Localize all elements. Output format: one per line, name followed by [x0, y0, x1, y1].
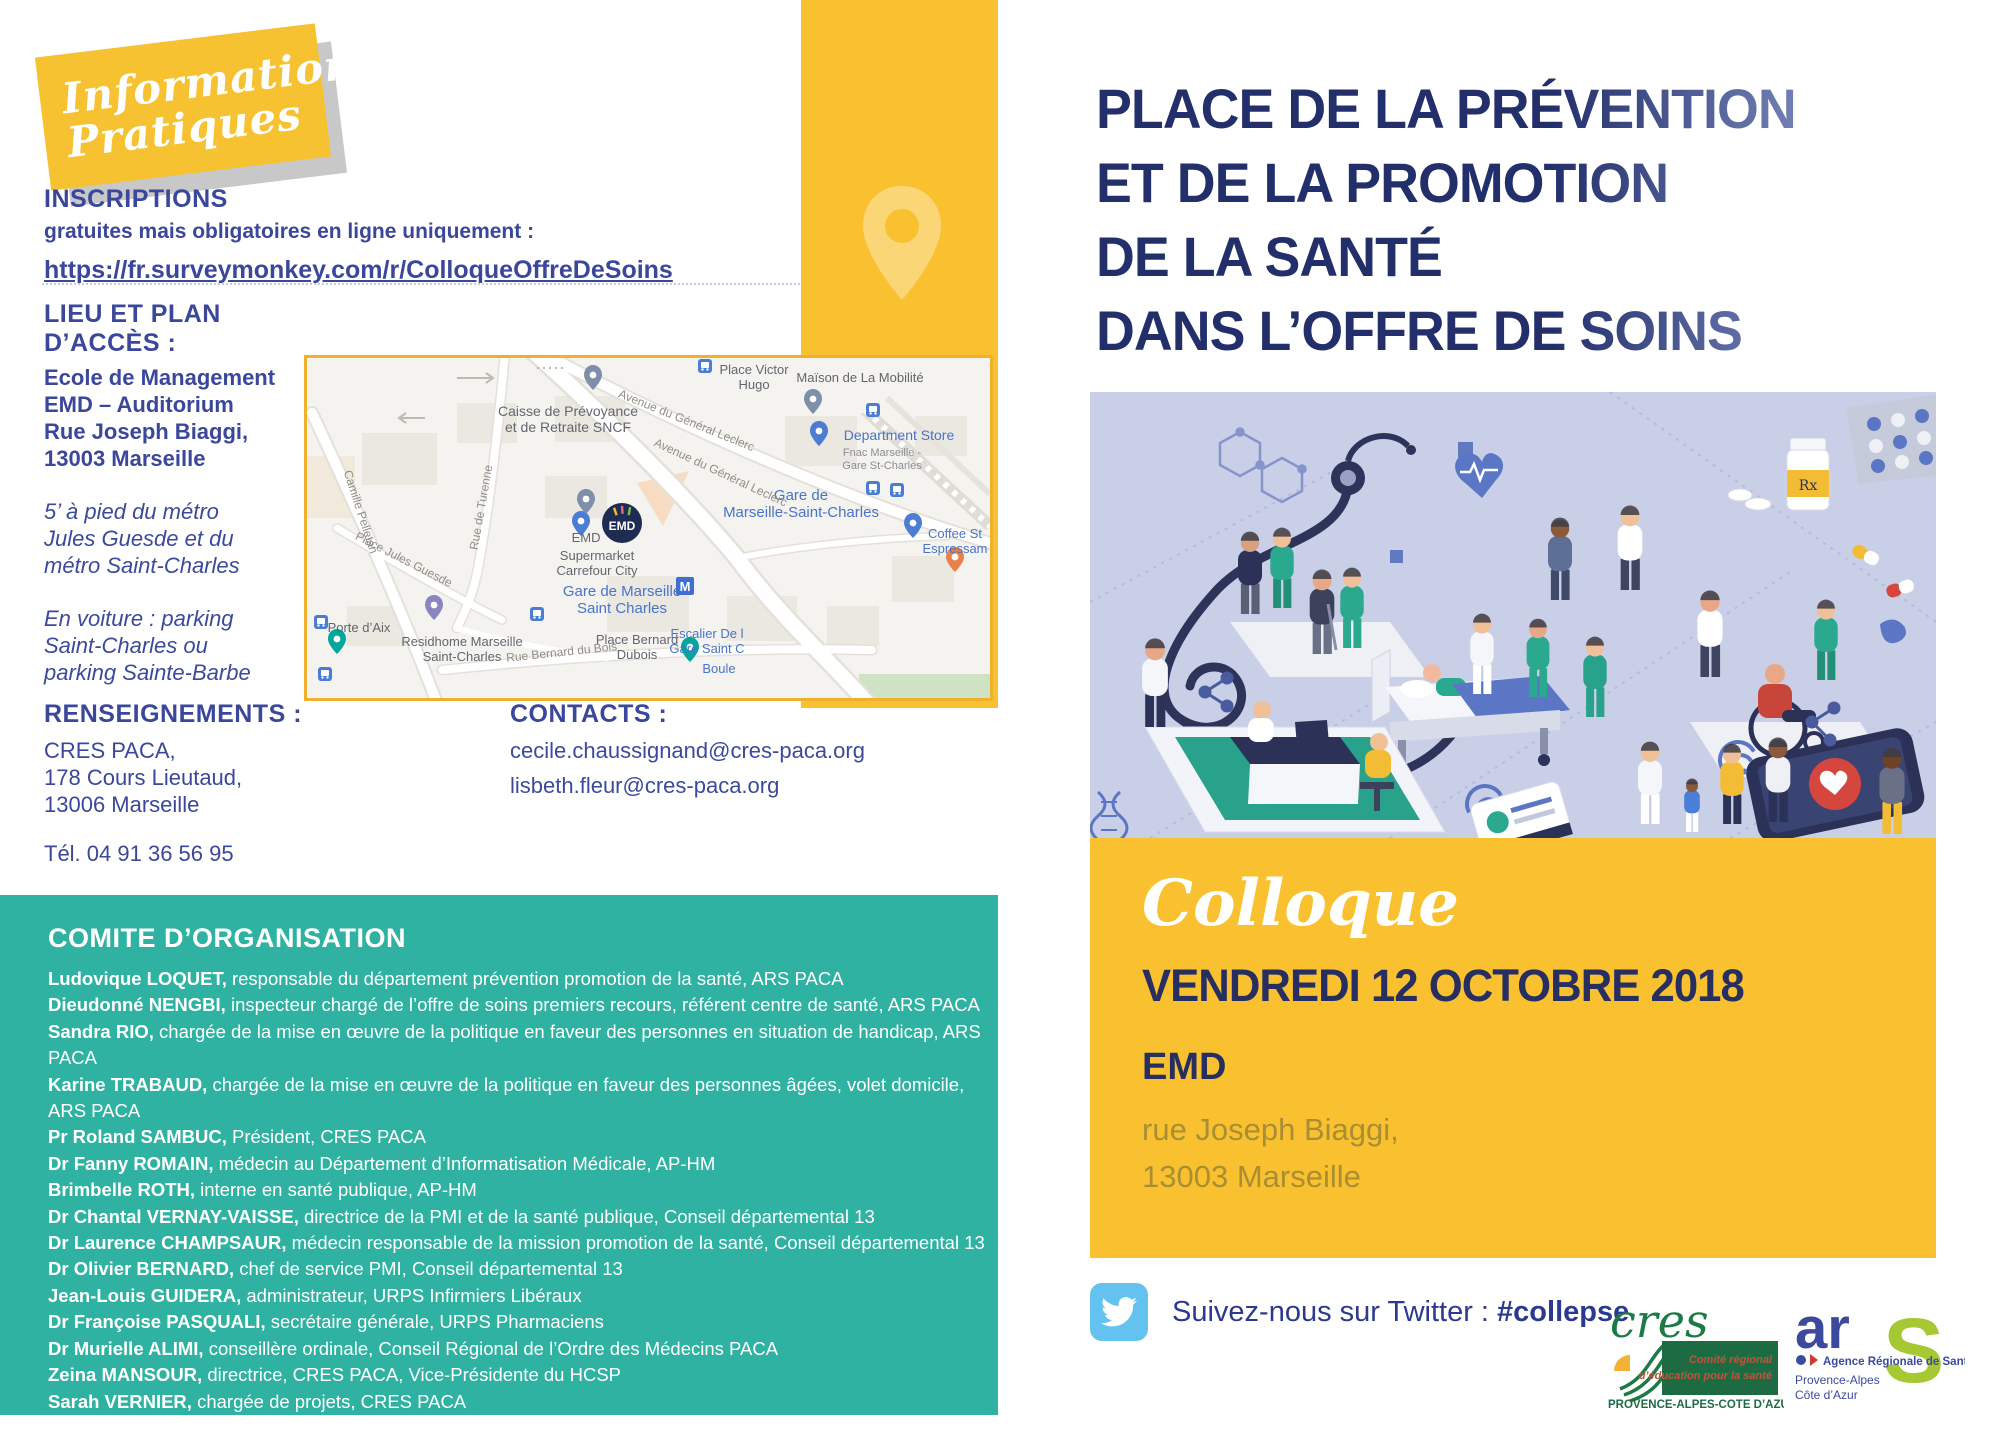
- contact-emails: cecile.chaussignand@cres-paca.orglisbeth…: [510, 738, 950, 799]
- map-pin-icon: [859, 182, 945, 312]
- cres-logo: cres Comité régional d’éducation pour la…: [1606, 1293, 1784, 1416]
- list-item: PLACE DE LA PRÉVENTION: [1096, 72, 1922, 146]
- comite-member: Sandra RIO, chargée de la mise en œuvre …: [48, 1019, 998, 1072]
- comite-block: COMITE D’ORGANISATION Ludovique LOQUET, …: [0, 895, 998, 1415]
- svg-text:et de Retraite SNCF: et de Retraite SNCF: [505, 419, 631, 435]
- transit-map-marker: [314, 615, 328, 629]
- list-item: Rue Joseph Biaggi,: [44, 418, 304, 445]
- svg-text:Gare Saint C: Gare Saint C: [669, 641, 744, 656]
- renseignements-section: RENSEIGNEMENTS : CRES PACA,178 Cours Lie…: [44, 700, 374, 918]
- comite-member: Brimbelle ROTH, interne en santé publiqu…: [48, 1177, 998, 1203]
- svg-text:Caisse de Prévoyance: Caisse de Prévoyance: [498, 403, 638, 419]
- twitter-icon: [1090, 1283, 1148, 1341]
- svg-text:EMD: EMD: [609, 519, 636, 533]
- svg-text:Saint Charles: Saint Charles: [577, 600, 667, 617]
- healthcare-illustration: Rx: [1090, 392, 1936, 838]
- map-label: Gare de MarseilleSaint Charles: [563, 583, 681, 617]
- event-address: rue Joseph Biaggi, 13003 Marseille: [1142, 1106, 1399, 1200]
- comite-member: Cécile CHAUSSIGNAND, chargée de projets,…: [48, 1415, 998, 1441]
- list-item: cecile.chaussignand@cres-paca.org: [510, 738, 950, 764]
- transit-map-marker: [890, 483, 904, 497]
- map-label: Escalier De lGare Saint C: [669, 626, 744, 656]
- renseignements-address: CRES PACA,178 Cours Lieutaud,13006 Marse…: [44, 737, 374, 818]
- svg-text:Maïson de La Mobilité: Maïson de La Mobilité: [796, 370, 923, 385]
- transit-map-marker: [318, 667, 332, 681]
- svg-text:Marseille-Saint-Charles: Marseille-Saint-Charles: [723, 504, 879, 521]
- comite-member: Dr Françoise PASQUALI, secrétaire généra…: [48, 1309, 998, 1335]
- svg-text:Rx: Rx: [1799, 478, 1818, 494]
- comite-title: COMITE D’ORGANISATION: [48, 923, 998, 954]
- list-item: 13006 Marseille: [44, 791, 374, 818]
- ars-region1: Provence-Alpes: [1795, 1373, 1880, 1387]
- comite-member: Dr Chantal VERNAY-VAISSE, directrice de …: [48, 1204, 998, 1230]
- comite-member: Zeina MANSOUR, directrice, CRES PACA, Vi…: [48, 1362, 998, 1388]
- twitter-row: Suivez-nous sur Twitter : #collepse: [1090, 1283, 1629, 1341]
- svg-text:Coffee St: Coffee St: [928, 526, 982, 541]
- contacts-section: CONTACTS : cecile.chaussignand@cres-paca…: [510, 700, 950, 799]
- event-block: Colloque VENDREDI 12 OCTOBRE 2018 EMD ru…: [1090, 838, 1936, 1258]
- svg-text:Boule: Boule: [702, 661, 735, 676]
- ars-region2: Côte d’Azur: [1795, 1388, 1858, 1402]
- map-label: EMD: [572, 530, 601, 545]
- list-item: CRES PACA,: [44, 737, 374, 764]
- map-green-area: [859, 674, 990, 698]
- list-item: Ecole de Management EMD – Auditorium: [44, 364, 304, 418]
- list-item: lisbeth.fleur@cres-paca.org: [510, 773, 950, 799]
- twitter-text: Suivez-nous sur Twitter : #collepse: [1172, 1296, 1629, 1329]
- svg-text:Fnac Marseille -: Fnac Marseille -: [843, 447, 922, 459]
- svg-text:Residhome Marseille: Residhome Marseille: [401, 634, 522, 649]
- comite-members: Ludovique LOQUET, responsable du départe…: [48, 966, 998, 1441]
- monitor-icon: [1295, 720, 1329, 746]
- cres-region: PROVENCE-ALPES-COTE D’AZUR: [1608, 1399, 1784, 1411]
- metro-access-note: 5’ à pied du métro Jules Guesde et du mé…: [44, 498, 262, 579]
- renseignements-title: RENSEIGNEMENTS :: [44, 700, 374, 729]
- inscriptions-title: INSCRIPTIONS: [44, 185, 764, 214]
- transit-map-marker: [530, 607, 544, 621]
- doctor-head: [1253, 701, 1271, 719]
- svg-text:Supermarket: Supermarket: [560, 548, 635, 563]
- cres-sub2: d’éducation pour la santé: [1639, 1370, 1772, 1382]
- square-icon: [1390, 550, 1403, 563]
- svg-text:Hugo: Hugo: [738, 377, 769, 392]
- svg-text:Espressam: Espressam: [922, 541, 987, 556]
- ars-line: Agence Régionale de Santé: [1823, 1356, 1965, 1368]
- svg-text:M: M: [680, 579, 691, 594]
- list-item: 13003 Marseille: [44, 445, 304, 472]
- comite-member: Karine TRABAUD, chargée de la mise en œu…: [48, 1072, 998, 1125]
- contacts-title: CONTACTS :: [510, 700, 950, 729]
- comite-member: Dieudonné NENGBI, inspecteur chargé de l…: [48, 992, 998, 1018]
- patient-head: [1423, 664, 1441, 682]
- comite-member: Dr Fanny ROMAIN, médecin au Département …: [48, 1151, 998, 1177]
- comite-member: Dr Olivier BERNARD, chef de service PMI,…: [48, 1256, 998, 1282]
- svg-text:Carrefour City: Carrefour City: [557, 563, 638, 578]
- comite-member: Pr Roland SAMBUC, Président, CRES PACA: [48, 1124, 998, 1150]
- svg-text:Place Victor: Place Victor: [719, 362, 789, 377]
- comite-member: Dr Murielle ALIMI, conseillère ordinale,…: [48, 1336, 998, 1362]
- emd-map-marker: EMD: [602, 503, 642, 543]
- svg-text:Gare St-Charles: Gare St-Charles: [842, 460, 922, 472]
- lieu-title: LIEU ET PLAN D’ACCÈS :: [44, 300, 304, 358]
- map-label: SupermarketCarrefour City: [557, 548, 638, 578]
- map-label: Department Store: [844, 427, 955, 443]
- svg-text:Dubois: Dubois: [617, 647, 658, 662]
- registration-link[interactable]: https://fr.surveymonkey.com/r/ColloqueOf…: [44, 256, 673, 285]
- comite-member: Jean-Louis GUIDERA, administrateur, URPS…: [48, 1283, 998, 1309]
- inscriptions-subtitle: gratuites mais obligatoires en ligne uni…: [44, 220, 764, 244]
- patient-head: [1370, 733, 1388, 751]
- lieu-address: Ecole de Management EMD – AuditoriumRue …: [44, 364, 304, 472]
- cres-sub1: Comité régional: [1689, 1354, 1773, 1366]
- cres-logo-text: cres: [1610, 1294, 1709, 1348]
- ars-ar: ar: [1795, 1298, 1850, 1361]
- parking-note: En voiture : parking Saint-Charles ou pa…: [44, 605, 262, 686]
- list-item: ET DE LA PROMOTION: [1096, 146, 1922, 220]
- access-map: MEMD Place VictorHugoMaïson de La Mobili…: [304, 355, 993, 701]
- transit-map-marker: [866, 403, 880, 417]
- map-label: Porte d’Aix: [328, 620, 391, 635]
- svg-text:Saint-Charles: Saint-Charles: [423, 649, 502, 664]
- phone-number: Tél. 04 91 36 56 95: [44, 840, 374, 867]
- dotted-separator: [42, 283, 800, 285]
- map-label: Coffee StEspressam: [922, 526, 987, 556]
- event-date: VENDREDI 12 OCTOBRE 2018: [1142, 960, 1744, 1012]
- svg-text:Porte d’Aix: Porte d’Aix: [328, 620, 391, 635]
- comite-member: Dr Laurence CHAMPSAUR, médecin responsab…: [48, 1230, 998, 1256]
- map-label: Maïson de La Mobilité: [796, 370, 923, 385]
- inscriptions-section: INSCRIPTIONS gratuites mais obligatoires…: [44, 185, 764, 285]
- map-label: Boule: [702, 661, 735, 676]
- map-label: Caisse de Prévoyanceet de Retraite SNCF: [498, 403, 638, 435]
- list-item: 178 Cours Lieutaud,: [44, 764, 374, 791]
- transit-map-marker: [698, 359, 712, 373]
- comite-member: Sarah VERNIER, chargée de projets, CRES …: [48, 1389, 998, 1415]
- transit-map-marker: [866, 481, 880, 495]
- ars-s: S: [1883, 1300, 1944, 1402]
- blister-pack-icon: [1846, 394, 1936, 484]
- svg-text:Escalier De l: Escalier De l: [671, 626, 744, 641]
- event-place: EMD: [1142, 1046, 1226, 1089]
- map-label: Fnac Marseille -Gare St-Charles: [842, 447, 922, 472]
- map-image: MEMD Place VictorHugoMaïson de La Mobili…: [307, 358, 990, 698]
- event-type: Colloque: [1142, 866, 1459, 941]
- svg-text:Department Store: Department Store: [844, 427, 955, 443]
- comite-member: Ludovique LOQUET, responsable du départe…: [48, 966, 998, 992]
- page-title: PLACE DE LA PRÉVENTIONET DE LA PROMOTION…: [1096, 72, 1956, 368]
- ars-logo: ar S Agence Régionale de Santé Provence-…: [1795, 1298, 1965, 1413]
- list-item: DANS L’OFFRE DE SOINS: [1096, 294, 1922, 368]
- list-item: DE LA SANTÉ: [1096, 220, 1922, 294]
- svg-text:EMD: EMD: [572, 530, 601, 545]
- svg-text:Gare de Marseille: Gare de Marseille: [563, 583, 681, 600]
- lieu-section: LIEU ET PLAN D’ACCÈS : Ecole de Manageme…: [44, 300, 304, 686]
